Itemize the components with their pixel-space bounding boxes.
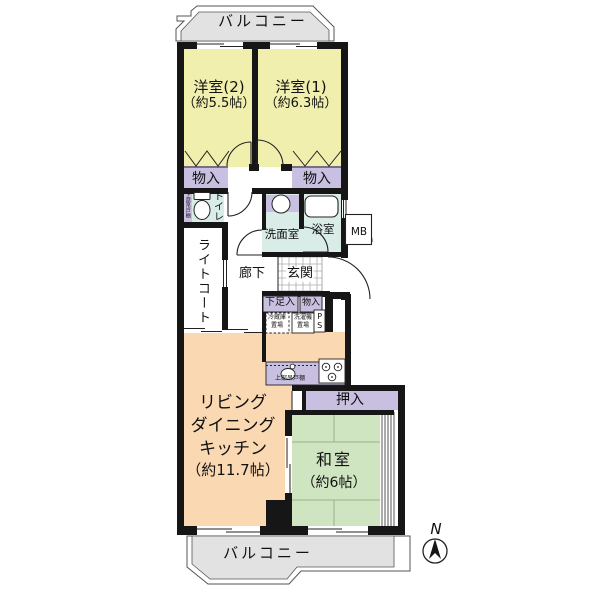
washer-space-label-2: 置場 xyxy=(297,323,309,330)
ldk-label-3: キッチン xyxy=(199,440,267,460)
toilet-icon xyxy=(194,193,210,220)
washitsu-size: （約6帖） xyxy=(302,475,367,491)
bedroom1-size: （約6.3帖） xyxy=(265,97,338,112)
light-court-label: ライトコート xyxy=(194,238,209,325)
ldk-size-label: （約11.7帖） xyxy=(186,462,279,479)
ldk-label-1: リビング xyxy=(199,394,267,414)
fridge-space-label-1: 冷蔵庫 xyxy=(268,315,286,322)
oshiire-label: 押入 xyxy=(336,392,364,408)
pipe-space-label: PS xyxy=(315,312,324,330)
meter-box-label: MB xyxy=(351,226,367,238)
washroom-label: 洗面室 xyxy=(265,228,300,241)
bedroom2-size: （約5.5帖） xyxy=(183,97,256,112)
washitsu-board-strip xyxy=(382,412,394,528)
bedroom1-name: 洋室(1) xyxy=(275,79,326,96)
toilet-label: トイレ xyxy=(211,191,223,221)
washbasin-icon xyxy=(272,195,290,213)
bath-label: 浴室 xyxy=(312,223,335,236)
kitchen-shelf-label: 上部吊戸棚 xyxy=(275,376,305,383)
washitsu-name: 和室 xyxy=(316,451,352,469)
compass-north-label: N xyxy=(430,521,441,538)
entrance-label: 玄関 xyxy=(286,267,314,282)
compass xyxy=(423,539,447,563)
bedroom2-name: 洋室(2) xyxy=(193,79,244,96)
bathtub-icon xyxy=(305,196,338,217)
washer-space-label-1: 洗濯機 xyxy=(294,315,312,322)
floorplan: バルコニー 洋室(2) （約5.5帖） 洋室(1) （約6.3帖） 物入 物入 … xyxy=(0,0,600,600)
balcony-bottom-label: バルコニー xyxy=(223,545,313,562)
entrance-storage-label: 物入 xyxy=(302,298,320,308)
stove-icon xyxy=(319,359,345,383)
shoe-storage-label: 下足入 xyxy=(265,297,295,309)
ldk-label-2: ダイニング xyxy=(191,417,276,437)
fridge-space-label-2: 置場 xyxy=(271,323,283,330)
storage-right-label: 物入 xyxy=(303,171,331,187)
storage-left-label: 物入 xyxy=(192,171,220,187)
toilet-shelf-label: 上部吊戸棚 xyxy=(184,193,190,218)
hallway-label: 廊下 xyxy=(239,267,265,282)
balcony-top-label: バルコニー xyxy=(218,13,308,30)
